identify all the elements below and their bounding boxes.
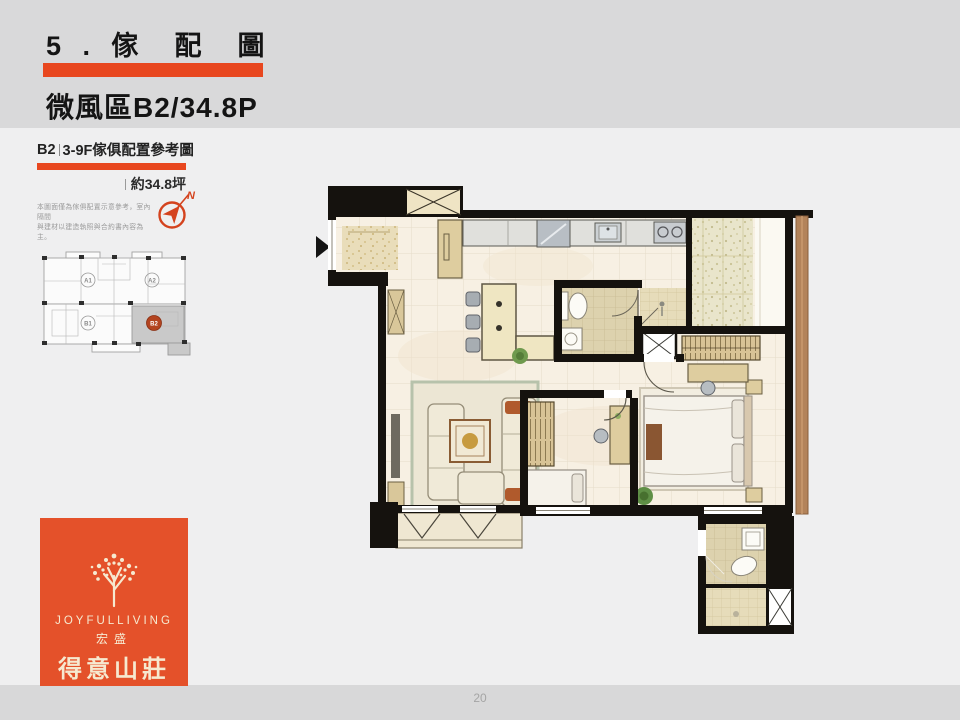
bathroom-sink — [560, 328, 582, 350]
bed-bench — [646, 424, 662, 460]
shower-room — [640, 288, 686, 328]
nightstand — [746, 488, 762, 502]
bathroom-2 — [698, 516, 794, 634]
title-accent-bar — [43, 63, 263, 77]
kitchen — [463, 220, 687, 247]
entry-closet — [406, 189, 461, 215]
divider — [59, 144, 60, 156]
brand-company-name: 宏盛 — [40, 630, 188, 647]
floor-plan-image — [308, 176, 820, 634]
brand-english-name: JOYFULLIVING — [40, 615, 188, 627]
brand-logo: JOYFULLIVING 宏盛 得意山莊 — [40, 518, 188, 686]
key-plan-label-b1: B1 — [84, 322, 92, 328]
disclaimer-text: 本圖面僅為傢俱配置示意參考，室內隔間 與建材以建造執照與合約書內容為主。 — [37, 203, 157, 243]
master-wardrobe — [682, 336, 760, 360]
table-plant — [462, 433, 478, 449]
bar-stool — [466, 315, 480, 329]
bath-drain — [733, 611, 739, 617]
utility-balcony — [690, 218, 785, 328]
key-plan-label-a1: A1 — [84, 279, 92, 285]
bathroom-main — [558, 286, 638, 356]
page-number: 20 — [0, 691, 960, 705]
plan-header-text: 3-9F傢俱配置參考圖 — [63, 139, 194, 160]
key-plan-label-a2: A2 — [148, 279, 156, 285]
entry-door-arrow-icon — [316, 236, 330, 258]
page-title: 5 . 傢 配 圖 — [46, 24, 272, 63]
compass-icon: N — [152, 186, 198, 234]
page-subtitle: 微風區B2/34.8P — [46, 86, 258, 126]
desk-chair — [594, 429, 608, 443]
pillow — [732, 400, 744, 438]
key-plan-diagram: A1 A2 B1 B2 — [36, 246, 198, 360]
living-balcony — [396, 513, 522, 548]
compass-north-label: N — [187, 190, 196, 202]
pillow — [732, 444, 744, 482]
stove — [654, 222, 686, 243]
sink — [742, 528, 764, 550]
wood-deck-strip — [796, 216, 808, 514]
toilet — [569, 293, 587, 319]
divider — [125, 179, 126, 190]
master-desk — [688, 364, 748, 382]
key-plan-label-b2: B2 — [150, 322, 158, 328]
chair — [701, 381, 715, 395]
wardrobe — [526, 402, 554, 466]
brand-project-name: 得意山莊 — [40, 649, 188, 684]
tv-console — [391, 414, 400, 478]
plan-accent-bar — [37, 163, 186, 170]
plan-header-unit: B2 — [37, 142, 56, 158]
disclaimer-line-2: 與建材以建造執照與合約書內容為主。 — [37, 223, 157, 243]
tree-icon — [82, 546, 146, 608]
disclaimer-line-1: 本圖面僅為傢俱配置示意參考，室內隔間 — [37, 203, 157, 223]
bar-stool — [466, 292, 480, 306]
bar-stool — [466, 338, 480, 352]
plan-header: B2 3-9F傢俱配置參考圖 — [37, 139, 194, 160]
